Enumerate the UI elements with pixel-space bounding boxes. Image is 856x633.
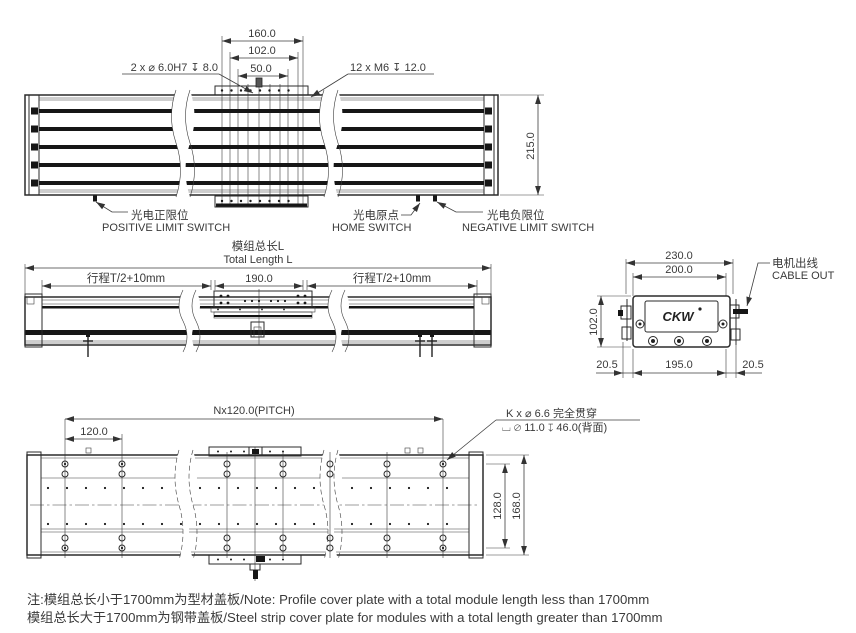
hole-callout-line1: K x ⌀ 6.6 完全贯穿 <box>506 406 597 420</box>
carriage-plate-bottom <box>215 196 308 207</box>
dowel-pin <box>256 78 262 87</box>
cable-out-en: CABLE OUT <box>772 270 835 282</box>
dim-pitch: Nx120.0(PITCH) <box>213 405 294 417</box>
end-view: 230.0 200.0 CKW <box>588 250 835 378</box>
dim-102-end: 102.0 <box>588 308 600 336</box>
mounting-holes <box>62 452 446 558</box>
dim-120: 120.0 <box>80 426 108 438</box>
total-length-zh: 模组总长L <box>232 239 285 253</box>
tap-callout-text: 12 x M6 ↧ 12.0 <box>350 62 426 74</box>
dim-200: 200.0 <box>665 264 693 276</box>
total-length-en: Total Length L <box>223 254 292 266</box>
home-sensor <box>416 196 420 202</box>
dim-230: 230.0 <box>665 250 693 262</box>
cover-plate-note: 注:模组总长小于1700mm为型材盖板/Note: Profile cover … <box>27 592 662 625</box>
dim-20-5-left: 20.5 <box>596 359 617 371</box>
dim-195: 195.0 <box>665 359 693 371</box>
drawing-sheet: 160.0 102.0 50.0 215.0 2 x ⌀ 6.0H7 ↧ 8.0… <box>0 0 856 633</box>
bottom-view-dimensions-right: 128.0 168.0 <box>486 455 529 555</box>
note-line-1: 注:模组总长小于1700mm为型材盖板/Note: Profile cover … <box>27 592 649 607</box>
negative-limit-sensor <box>433 196 437 202</box>
dim-190: 190.0 <box>245 273 273 285</box>
home-switch-zh: 光电原点 <box>353 208 399 222</box>
cable-out-label: 电机出线 CABLE OUT <box>747 256 835 306</box>
home-switch-en: HOME SWITCH <box>332 222 411 234</box>
negative-limit-zh: 光电负限位 <box>487 208 545 222</box>
top-plan-view: 160.0 102.0 50.0 215.0 2 x ⌀ 6.0H7 ↧ 8.0… <box>25 28 594 234</box>
cable-out-pin <box>733 309 748 314</box>
positive-limit-zh: 光电正限位 <box>131 208 189 222</box>
dowel-hole-callout: 2 x ⌀ 6.0H7 ↧ 8.0 <box>122 62 253 93</box>
dim-215: 215.0 <box>525 132 537 160</box>
dowel-callout-text: 2 x ⌀ 6.0H7 ↧ 8.0 <box>131 62 218 74</box>
stroke-left-label: 行程T/2+10mm <box>87 272 165 285</box>
dim-102: 102.0 <box>248 45 276 57</box>
cable-out-zh: 电机出线 <box>772 256 818 270</box>
dim-20-5-right: 20.5 <box>742 359 763 371</box>
side-elevation-view: 模组总长L Total Length L 行程T/2+10mm 190.0 行程… <box>25 239 491 357</box>
home-switch-label: 光电原点 HOME SWITCH <box>332 203 420 234</box>
dim-160: 160.0 <box>248 28 276 40</box>
hole-callout-line2: ⌴ ⌀ 11.0 ↧ 46.0(背面) <box>502 420 607 434</box>
dim-128: 128.0 <box>492 492 504 520</box>
positive-limit-en: POSITIVE LIMIT SWITCH <box>102 222 230 234</box>
positive-limit-switch-label: 光电正限位 POSITIVE LIMIT SWITCH <box>96 202 230 234</box>
logo-dot <box>698 307 701 310</box>
note-line-2: 模组总长大于1700mm为钢带盖板/Steel strip cover plat… <box>27 610 662 625</box>
carriage-bottom-view <box>209 447 301 581</box>
dim-168: 168.0 <box>511 492 523 520</box>
positive-limit-sensor <box>93 196 97 202</box>
profile-slots <box>31 108 492 187</box>
end-view-dimensions-top: 230.0 200.0 <box>626 250 733 296</box>
stroke-right-label: 行程T/2+10mm <box>353 272 431 285</box>
break-lines-top-view <box>172 90 343 197</box>
negative-limit-switch-label: 光电负限位 NEGATIVE LIMIT SWITCH <box>437 202 594 234</box>
negative-limit-en: NEGATIVE LIMIT SWITCH <box>462 222 594 234</box>
bottom-view: Nx120.0(PITCH) 120.0 K x ⌀ 6.6 完全贯穿 ⌴ ⌀ … <box>27 405 640 581</box>
carriage-plate-top <box>215 78 308 95</box>
module-technical-drawing: 160.0 102.0 50.0 215.0 2 x ⌀ 6.0H7 ↧ 8.0… <box>0 0 856 633</box>
dim-50: 50.0 <box>250 63 271 75</box>
brand-logo: CKW <box>662 309 695 324</box>
